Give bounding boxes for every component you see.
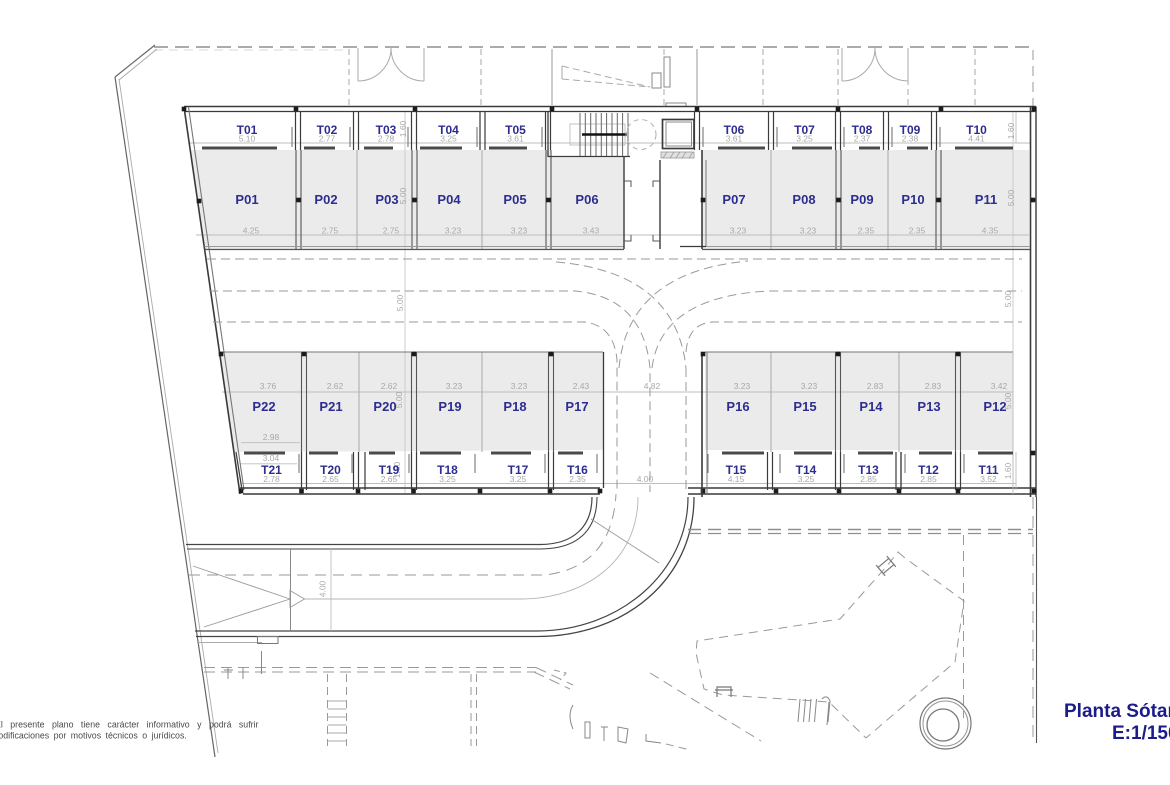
svg-text:3.23: 3.23: [445, 226, 462, 236]
svg-text:3.25: 3.25: [798, 474, 815, 484]
svg-text:5.00: 5.00: [394, 391, 404, 408]
svg-text:P14: P14: [859, 399, 883, 414]
svg-text:3.43: 3.43: [583, 226, 600, 236]
svg-text:5.00: 5.00: [1006, 189, 1016, 206]
svg-text:P21: P21: [319, 399, 342, 414]
svg-text:P15: P15: [793, 399, 816, 414]
svg-text:2.65: 2.65: [381, 474, 398, 484]
svg-text:3.23: 3.23: [800, 226, 817, 236]
svg-text:3.23: 3.23: [511, 226, 528, 236]
svg-text:1.60: 1.60: [1006, 122, 1016, 139]
svg-text:5.00: 5.00: [1003, 392, 1013, 409]
svg-text:P06: P06: [575, 192, 598, 207]
svg-text:5.00: 5.00: [395, 294, 405, 311]
svg-text:2.83: 2.83: [925, 381, 942, 391]
svg-text:P18: P18: [503, 399, 526, 414]
svg-text:3.61: 3.61: [507, 134, 524, 144]
svg-text:3.52: 3.52: [980, 474, 997, 484]
svg-text:P04: P04: [437, 192, 461, 207]
svg-text:4.15: 4.15: [728, 474, 745, 484]
svg-text:3.25: 3.25: [796, 134, 813, 144]
svg-text:P22: P22: [252, 399, 275, 414]
svg-text:P09: P09: [850, 192, 873, 207]
svg-text:4.35: 4.35: [982, 226, 999, 236]
svg-text:3.23: 3.23: [734, 381, 751, 391]
svg-text:3.42: 3.42: [991, 381, 1008, 391]
svg-text:modificaciones por motivos téc: modificaciones por motivos técnicos o ju…: [0, 731, 187, 741]
svg-text:Planta Sótano: Planta Sótano: [1064, 701, 1170, 722]
svg-text:5.10: 5.10: [239, 134, 256, 144]
svg-text:2.35: 2.35: [858, 226, 875, 236]
svg-text:P08: P08: [792, 192, 815, 207]
svg-text:3.25: 3.25: [510, 474, 527, 484]
svg-text:4.41: 4.41: [968, 134, 985, 144]
svg-text:2.35: 2.35: [569, 474, 586, 484]
svg-text:2.83: 2.83: [867, 381, 884, 391]
svg-text:P17: P17: [565, 399, 588, 414]
svg-text:3.76: 3.76: [260, 381, 277, 391]
svg-text:2.37: 2.37: [854, 134, 871, 144]
svg-text:4.25: 4.25: [243, 226, 260, 236]
svg-text:2.98: 2.98: [263, 432, 280, 442]
svg-text:P01: P01: [235, 192, 258, 207]
svg-text:2.78: 2.78: [263, 474, 280, 484]
svg-text:3.61: 3.61: [726, 134, 743, 144]
svg-text:5.00: 5.00: [398, 187, 408, 204]
svg-text:3.23: 3.23: [801, 381, 818, 391]
svg-text:3.25: 3.25: [439, 474, 456, 484]
svg-text:E:1/150: E:1/150: [1112, 723, 1170, 744]
svg-text:P07: P07: [722, 192, 745, 207]
svg-text:1.60: 1.60: [398, 120, 408, 137]
svg-text:2.62: 2.62: [381, 381, 398, 391]
svg-text:P16: P16: [726, 399, 749, 414]
svg-text:3.25: 3.25: [440, 134, 457, 144]
svg-text:2.62: 2.62: [327, 381, 344, 391]
svg-text:2.77: 2.77: [319, 134, 336, 144]
svg-text:2.43: 2.43: [573, 381, 590, 391]
svg-text:P03: P03: [375, 192, 398, 207]
svg-text:2.75: 2.75: [322, 226, 339, 236]
svg-text:P19: P19: [438, 399, 461, 414]
svg-text:3.23: 3.23: [730, 226, 747, 236]
svg-text:2.65: 2.65: [322, 474, 339, 484]
svg-text:4.00: 4.00: [318, 580, 328, 597]
svg-text:3.23: 3.23: [446, 381, 463, 391]
svg-text:2.85: 2.85: [920, 474, 937, 484]
svg-text:4.00: 4.00: [637, 474, 654, 484]
svg-text:2.85: 2.85: [860, 474, 877, 484]
svg-text:P05: P05: [503, 192, 526, 207]
svg-text:P02: P02: [314, 192, 337, 207]
svg-text:2.75: 2.75: [383, 226, 400, 236]
svg-text:P13: P13: [917, 399, 940, 414]
svg-text:2.35: 2.35: [909, 226, 926, 236]
svg-text:4.82: 4.82: [644, 381, 661, 391]
svg-text:El presente plano tiene caráct: El presente plano tiene carácter informa…: [0, 720, 259, 730]
svg-text:2.38: 2.38: [902, 134, 919, 144]
svg-text:P10: P10: [901, 192, 924, 207]
svg-text:5.00: 5.00: [1003, 290, 1013, 307]
svg-text:1.60: 1.60: [1003, 462, 1013, 479]
svg-text:2.78: 2.78: [378, 134, 395, 144]
svg-text:P11: P11: [975, 192, 997, 207]
svg-text:3.23: 3.23: [511, 381, 528, 391]
